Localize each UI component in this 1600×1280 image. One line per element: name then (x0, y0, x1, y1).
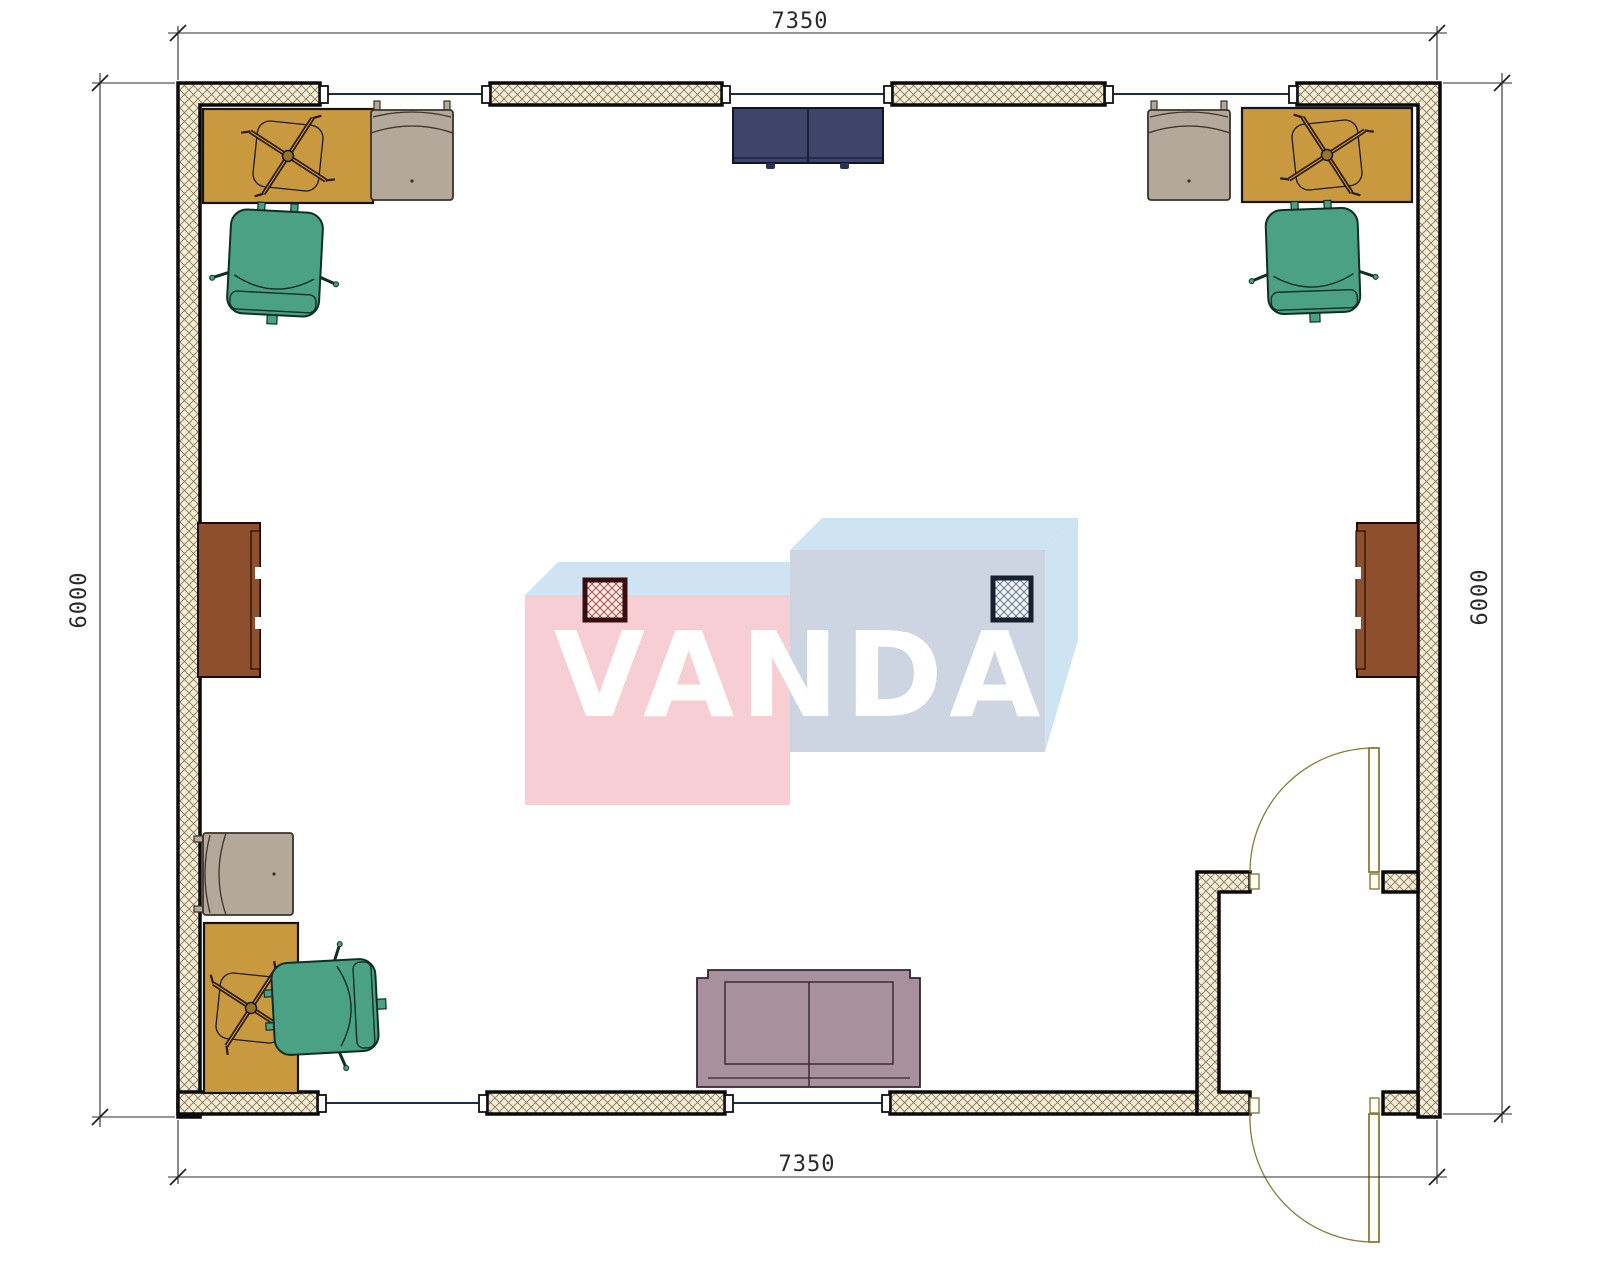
outer-door-jamb-block (1250, 1098, 1259, 1113)
sofa-bottom-center (697, 970, 920, 1087)
window-frame-end (884, 86, 892, 103)
cabinet-right-wall (1355, 523, 1418, 677)
wall-flange-outer-door (1383, 1092, 1418, 1114)
armchair-top-right (1148, 101, 1230, 200)
dim-label-bottom: 7350 (779, 1152, 836, 1177)
watermark-text: VANDA (554, 606, 1047, 744)
window-frame-end (1289, 86, 1297, 103)
armchair-bottom-left (194, 833, 293, 915)
inner-door-swing-arc (1250, 748, 1374, 872)
floor-plan-drawing: VANDA (0, 0, 1600, 1280)
outer-door-swing-arc (1250, 1114, 1374, 1242)
window-frame-end (882, 1095, 890, 1112)
wall-flange-inner-door (1383, 872, 1418, 892)
window-frame-end (320, 86, 328, 103)
dim-label-top: 7350 (772, 9, 829, 34)
dim-label-right: 6000 (1468, 569, 1493, 626)
entry-doors (1250, 748, 1379, 1242)
dim-label-left: 6000 (67, 572, 92, 629)
window-frame-end (318, 1095, 326, 1112)
wall-bottom-panel-3 (890, 1092, 1197, 1114)
inner-door-leaf (1369, 748, 1379, 872)
wall-vestibule-stub (1197, 872, 1250, 1114)
office-chair-top-right (1246, 199, 1379, 324)
watermark-right-box-side (1045, 518, 1078, 752)
window-frame-end (722, 86, 730, 103)
wall-bottom-panel-2 (487, 1092, 725, 1114)
floor-plan-canvas: VANDA (0, 0, 1600, 1280)
wall-top-panel-2 (892, 83, 1105, 105)
watermark-left-box-top (525, 562, 790, 595)
wall-bottom-panel-1 (178, 1092, 318, 1114)
office-chair-top-left (207, 200, 342, 328)
column-right (993, 578, 1031, 620)
window-frame-end (479, 1095, 487, 1112)
wall-top-panel-1 (490, 83, 722, 105)
outer-door-leaf (1369, 1114, 1379, 1242)
storage-cabinet-top-center (733, 108, 883, 169)
watermark-right-box-top (790, 518, 1078, 550)
outer-door-hinge-block (1370, 1098, 1379, 1113)
window-frame-end (482, 86, 490, 103)
window-frame-end (1105, 86, 1113, 103)
inner-door-hinge-block (1370, 874, 1379, 889)
inner-door-jamb-block (1250, 874, 1259, 889)
armchair-top-left (371, 101, 453, 200)
cabinet-left-wall (198, 523, 261, 677)
column-left (585, 580, 625, 620)
window-frame-end (725, 1095, 733, 1112)
watermark: VANDA (525, 518, 1078, 805)
